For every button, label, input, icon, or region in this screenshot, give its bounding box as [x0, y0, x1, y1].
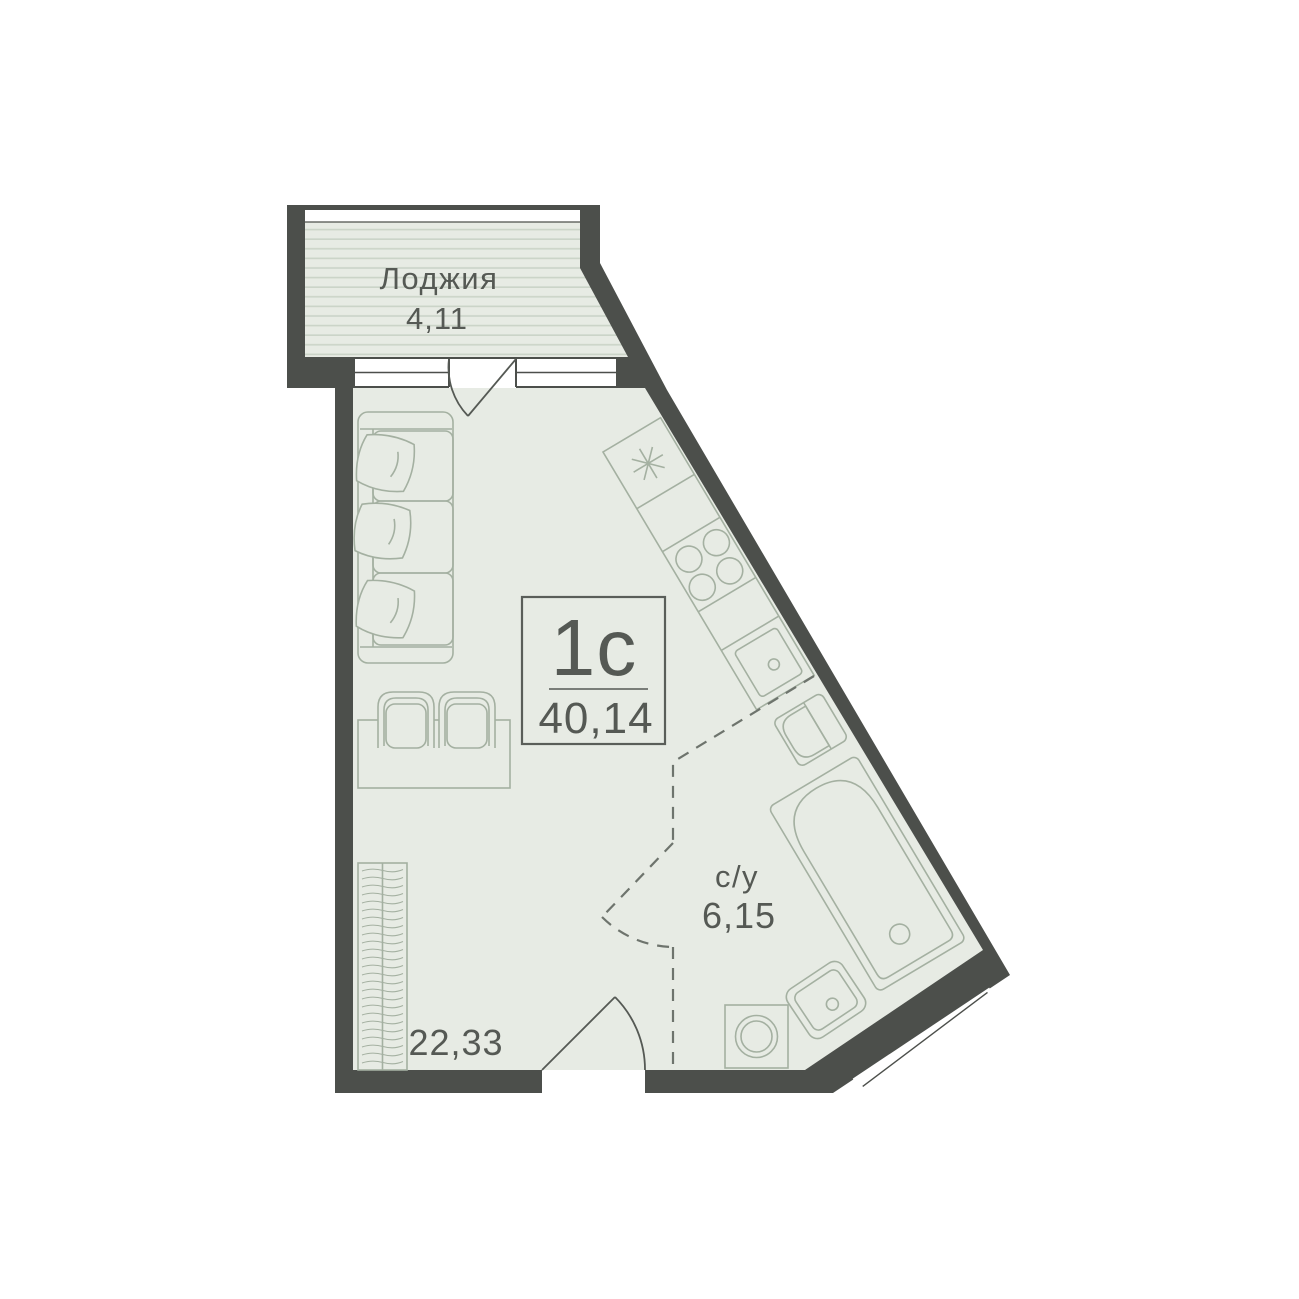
pillow	[350, 499, 414, 563]
loggia-label: Лоджия	[380, 261, 499, 296]
unit-type-label: 1с	[551, 603, 638, 692]
living-kitchen-area: 22,33	[408, 1022, 503, 1063]
bathroom-label: с/у	[715, 859, 759, 894]
bathroom-area: 6,15	[702, 895, 776, 936]
sofa	[350, 412, 453, 663]
entrance-opening	[542, 1070, 645, 1093]
chair	[439, 692, 495, 748]
floor-plan: 1с 40,14 Лоджия 4,11 с/у 6,15 22,33	[0, 0, 1299, 1299]
balcony-window-band	[354, 358, 617, 388]
chair	[378, 692, 434, 748]
loggia-area: 4,11	[406, 301, 468, 336]
loggia-glazing	[305, 210, 580, 222]
wardrobe	[358, 863, 407, 1070]
floor-plan-svg: 1с 40,14 Лоджия 4,11 с/у 6,15 22,33	[0, 0, 1299, 1299]
unit-total-area: 40,14	[538, 694, 653, 743]
